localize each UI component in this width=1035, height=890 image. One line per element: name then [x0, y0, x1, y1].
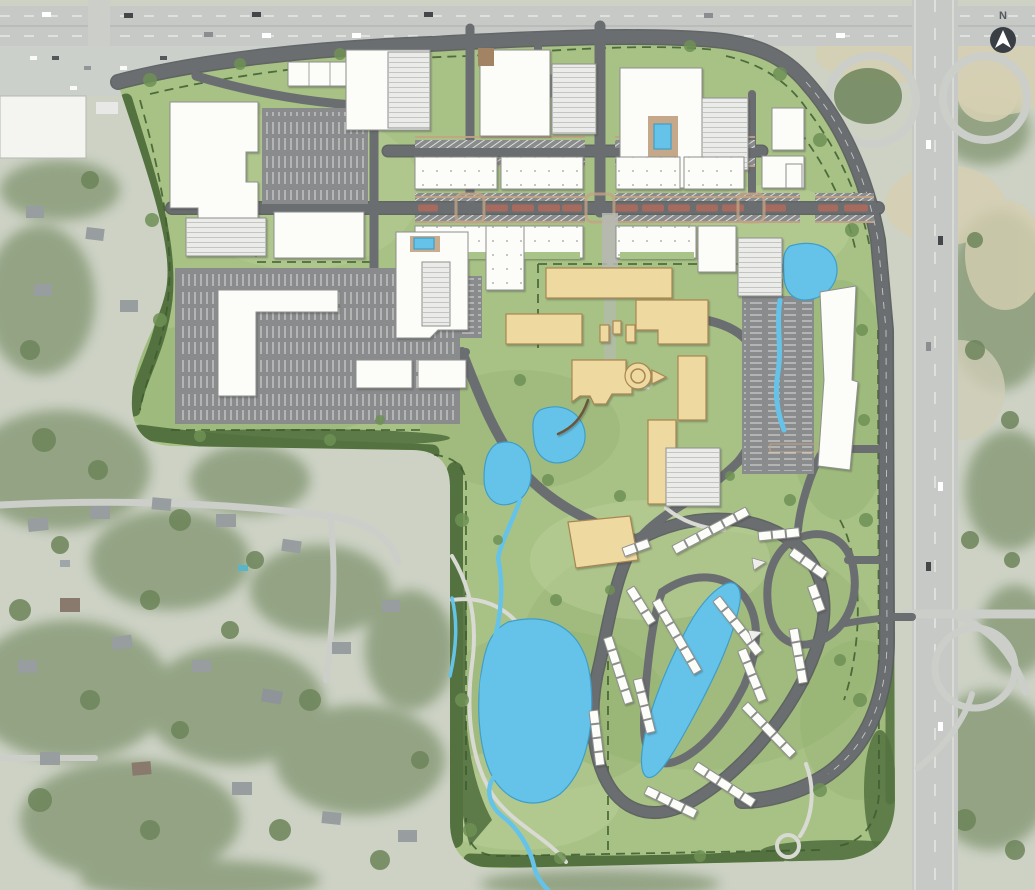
green-roof — [620, 252, 694, 259]
courtyard-pool — [654, 124, 671, 149]
campus-parking-structure — [666, 448, 720, 506]
retail-strip — [418, 360, 466, 388]
plan-canvas: N — [0, 0, 1035, 890]
main-street-north-row — [415, 157, 744, 189]
parking-garage — [346, 50, 430, 130]
big-box-store — [170, 102, 258, 218]
aerial-store-roof — [0, 96, 86, 158]
campus-west-wing — [506, 314, 582, 344]
rooftop-pool — [414, 238, 434, 249]
retail-box — [274, 212, 364, 258]
east-parking-rows — [742, 296, 826, 474]
angled-building-east — [818, 286, 858, 470]
campus-north-bar — [546, 268, 672, 298]
campus-south-bar — [678, 356, 706, 420]
compass-label: N — [999, 10, 1007, 22]
retail-strip — [356, 360, 412, 388]
garden-center-canopy — [186, 218, 266, 256]
site-plan-rendering: N — [0, 0, 1035, 890]
south-trapezoid-building — [568, 516, 638, 568]
pond-campus-2 — [484, 442, 531, 505]
